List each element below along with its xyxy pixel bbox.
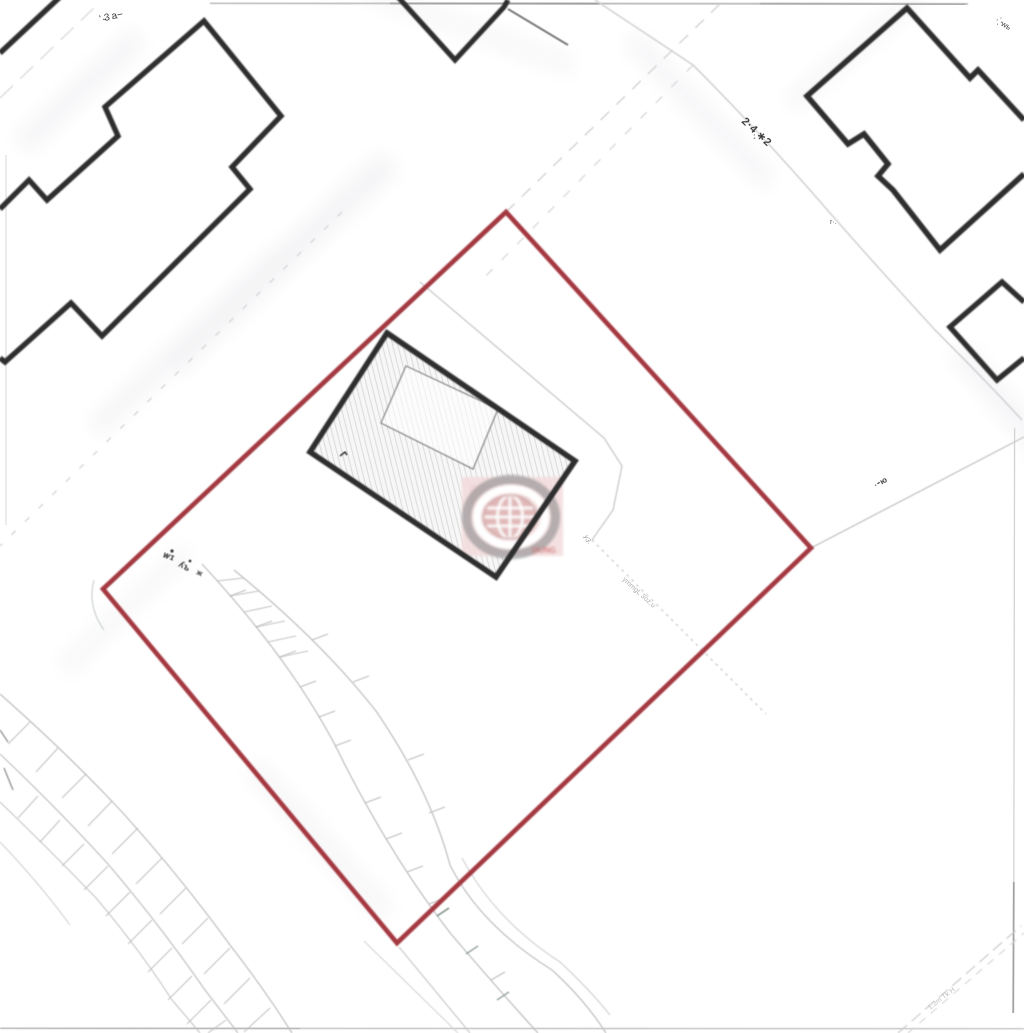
svg-text:r·.: r·. [830,219,837,226]
svg-text:OUNG: OUNG [532,546,556,555]
